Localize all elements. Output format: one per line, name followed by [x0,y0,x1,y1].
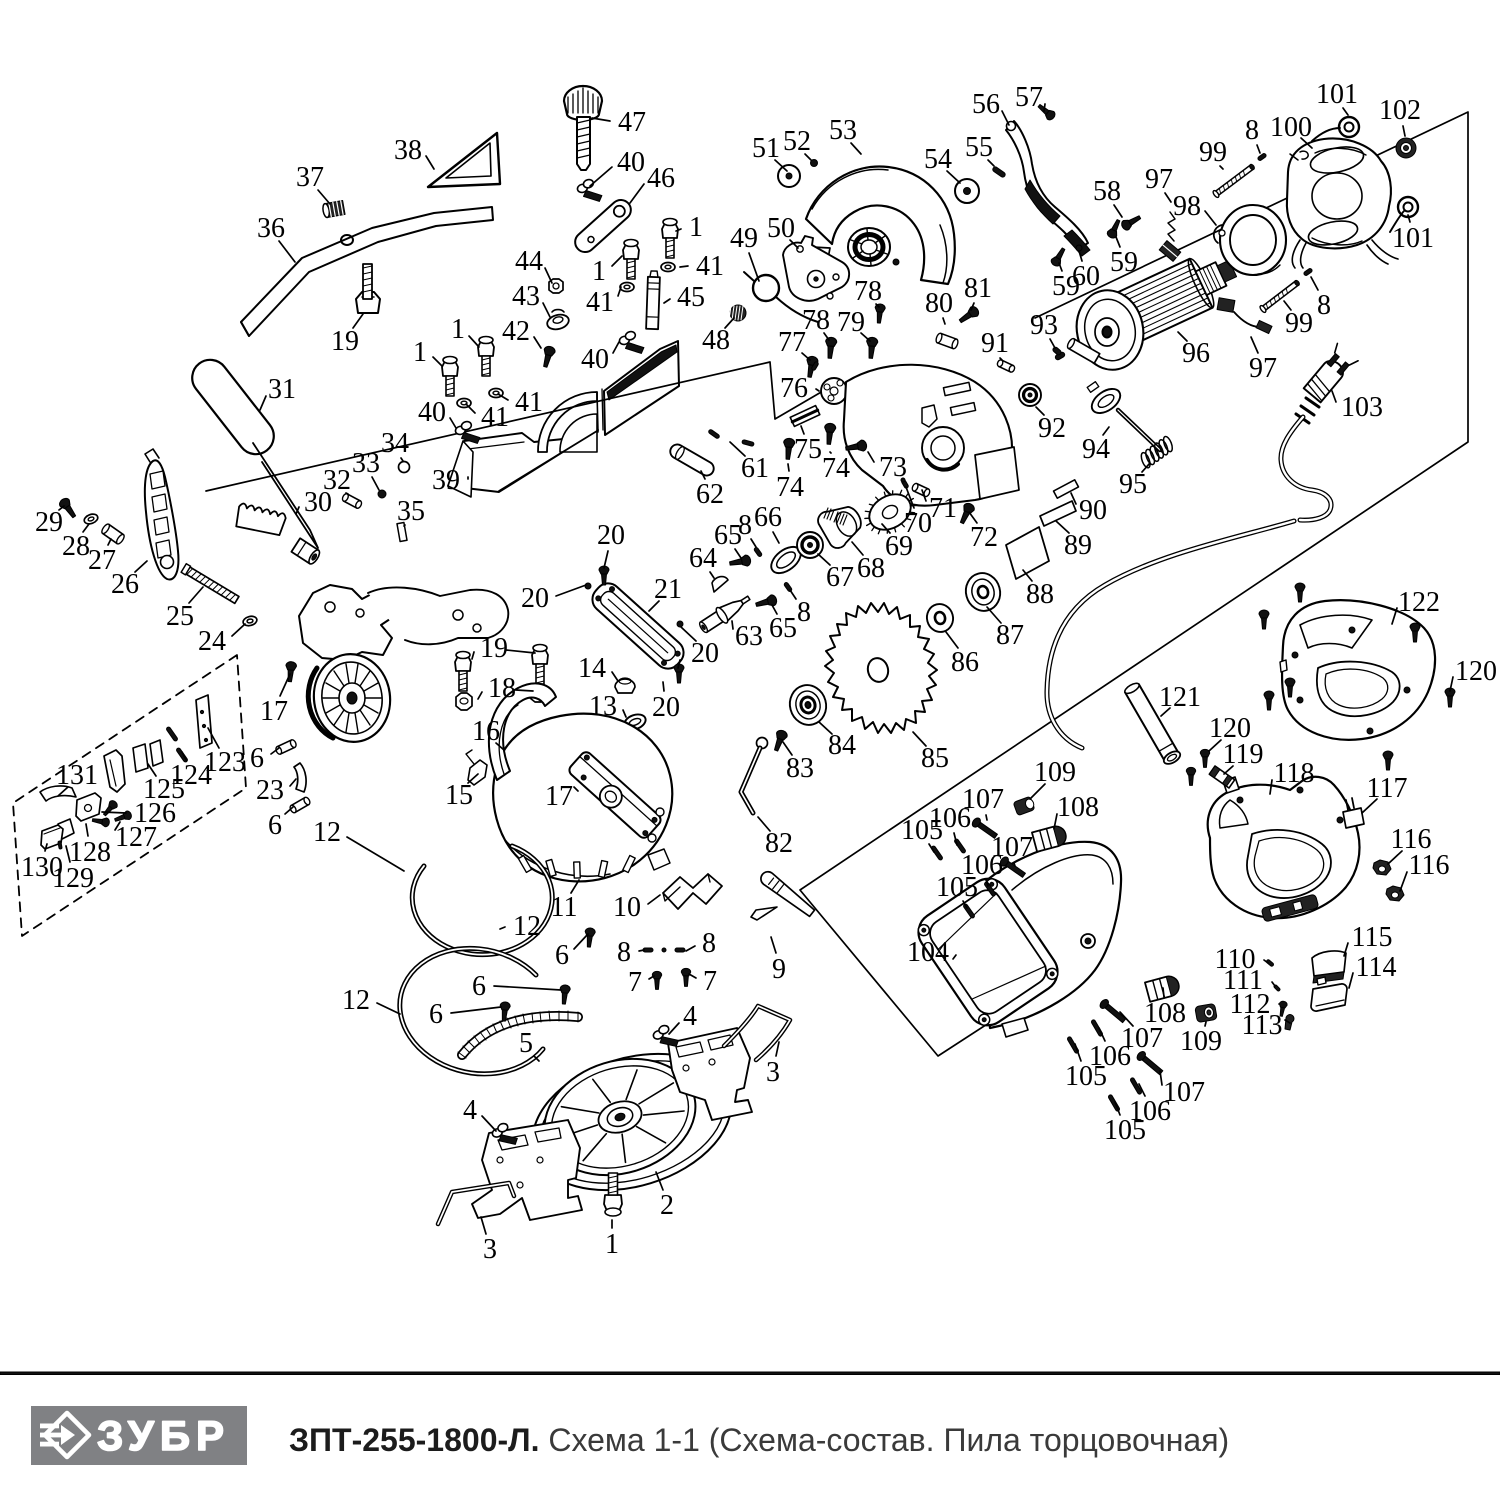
svg-text:114: 114 [1356,952,1397,983]
svg-text:40: 40 [418,397,446,428]
svg-text:8: 8 [738,510,752,541]
svg-text:5: 5 [519,1028,533,1059]
svg-text:34: 34 [381,428,409,459]
svg-text:52: 52 [783,126,811,157]
svg-text:62: 62 [696,479,724,510]
svg-text:6: 6 [555,940,569,971]
svg-text:102: 102 [1379,95,1421,126]
svg-text:30: 30 [304,487,332,518]
svg-text:116: 116 [1409,850,1450,881]
svg-text:1: 1 [605,1229,619,1260]
svg-text:68: 68 [857,553,885,584]
svg-text:108: 108 [1057,792,1099,823]
svg-text:3: 3 [766,1057,780,1088]
svg-text:118: 118 [1274,758,1315,789]
svg-text:ЗУБР: ЗУБР [97,1412,230,1459]
svg-text:107: 107 [962,784,1004,815]
svg-text:19: 19 [331,326,359,357]
svg-text:131: 131 [56,760,98,791]
svg-text:12: 12 [513,911,541,942]
svg-text:7: 7 [628,967,642,998]
svg-text:39: 39 [432,465,460,496]
svg-text:1: 1 [592,256,606,287]
svg-text:59: 59 [1052,271,1080,302]
svg-text:41: 41 [515,387,543,418]
svg-text:8: 8 [797,597,811,628]
svg-text:25: 25 [166,601,194,632]
svg-text:10: 10 [613,892,641,923]
svg-text:36: 36 [257,213,285,244]
svg-text:78: 78 [854,276,882,307]
svg-text:55: 55 [965,132,993,163]
svg-text:45: 45 [677,282,705,313]
svg-text:82: 82 [765,828,793,859]
svg-text:53: 53 [829,115,857,146]
svg-text:100: 100 [1270,112,1312,143]
svg-text:115: 115 [1352,922,1393,953]
svg-text:58: 58 [1093,176,1121,207]
svg-text:11: 11 [551,892,578,923]
svg-text:48: 48 [702,325,730,356]
svg-text:46: 46 [647,163,675,194]
svg-text:74: 74 [822,453,850,484]
svg-text:20: 20 [652,692,680,723]
svg-text:104: 104 [907,937,949,968]
svg-text:76: 76 [780,373,808,404]
svg-text:67: 67 [826,562,854,593]
svg-text:101: 101 [1316,79,1358,110]
svg-text:41: 41 [586,287,614,318]
svg-text:87: 87 [996,620,1024,651]
svg-text:3: 3 [483,1234,497,1265]
svg-text:117: 117 [1367,773,1408,804]
svg-text:43: 43 [512,281,540,312]
svg-text:127: 127 [115,822,157,853]
svg-text:23: 23 [256,775,284,806]
svg-text:74: 74 [776,472,804,503]
svg-text:99: 99 [1285,308,1313,339]
svg-text:64: 64 [689,543,717,574]
svg-text:41: 41 [481,402,509,433]
svg-text:4: 4 [463,1095,477,1126]
svg-text:81: 81 [964,273,992,304]
svg-text:109: 109 [1180,1026,1222,1057]
svg-text:86: 86 [951,647,979,678]
svg-text:107: 107 [991,832,1033,863]
svg-text:105: 105 [1104,1115,1146,1146]
svg-text:35: 35 [397,496,425,527]
svg-text:47: 47 [618,107,646,138]
svg-text:91: 91 [981,328,1009,359]
svg-text:73: 73 [879,452,907,483]
svg-text:130: 130 [21,852,63,883]
svg-text:88: 88 [1026,579,1054,610]
svg-text:28: 28 [62,531,90,562]
svg-text:31: 31 [268,374,296,405]
svg-text:20: 20 [691,638,719,669]
svg-text:122: 122 [1398,587,1440,618]
svg-text:101: 101 [1392,223,1434,254]
svg-text:96: 96 [1182,338,1210,369]
svg-text:6: 6 [268,810,282,841]
svg-text:57: 57 [1015,82,1043,113]
svg-text:113: 113 [1242,1010,1283,1041]
svg-text:95: 95 [1119,469,1147,500]
svg-text:72: 72 [970,522,998,553]
svg-text:61: 61 [741,453,769,484]
svg-text:12: 12 [342,985,370,1016]
svg-text:80: 80 [925,288,953,319]
svg-text:51: 51 [752,133,780,164]
svg-text:20: 20 [521,583,549,614]
svg-text:9: 9 [772,954,786,985]
svg-text:8: 8 [1245,115,1259,146]
svg-text:93: 93 [1030,310,1058,341]
svg-text:4: 4 [683,1001,697,1032]
svg-text:1: 1 [451,314,465,345]
svg-text:ЗПТ-255-1800-Л. Схема 1-1 (Схе: ЗПТ-255-1800-Л. Схема 1-1 (Схема-состав.… [289,1422,1229,1458]
svg-text:17: 17 [260,696,288,727]
svg-text:26: 26 [111,569,139,600]
svg-text:17: 17 [545,781,573,812]
svg-text:40: 40 [581,344,609,375]
svg-text:98: 98 [1173,191,1201,222]
svg-text:20: 20 [597,520,625,551]
svg-text:108: 108 [1144,998,1186,1029]
svg-text:14: 14 [578,653,606,684]
svg-text:2: 2 [660,1190,674,1221]
svg-text:29: 29 [35,507,63,538]
svg-text:6: 6 [250,743,264,774]
svg-text:40: 40 [617,147,645,178]
svg-text:69: 69 [885,531,913,562]
svg-text:42: 42 [502,316,530,347]
svg-text:44: 44 [515,246,543,277]
svg-text:38: 38 [394,135,422,166]
svg-text:65: 65 [769,613,797,644]
svg-text:37: 37 [296,162,324,193]
svg-text:85: 85 [921,743,949,774]
svg-text:13: 13 [589,691,617,722]
svg-text:59: 59 [1110,247,1138,278]
svg-text:63: 63 [735,621,763,652]
svg-text:56: 56 [972,89,1000,120]
svg-text:92: 92 [1038,413,1066,444]
svg-text:109: 109 [1034,757,1076,788]
svg-text:1: 1 [689,212,703,243]
svg-text:97: 97 [1145,164,1173,195]
svg-text:6: 6 [472,971,486,1002]
svg-text:103: 103 [1341,392,1383,423]
svg-text:12: 12 [313,817,341,848]
svg-text:89: 89 [1064,530,1092,561]
svg-text:90: 90 [1079,495,1107,526]
svg-text:18: 18 [488,673,516,704]
svg-text:21: 21 [654,574,682,605]
svg-text:16: 16 [472,716,500,747]
svg-text:6: 6 [429,999,443,1030]
svg-text:121: 121 [1159,682,1201,713]
svg-text:8: 8 [1317,290,1331,321]
svg-text:78: 78 [802,305,830,336]
svg-text:71: 71 [929,493,957,524]
svg-text:41: 41 [696,251,724,282]
svg-text:50: 50 [767,213,795,244]
svg-text:84: 84 [828,730,856,761]
svg-text:119: 119 [1223,739,1264,770]
svg-text:8: 8 [617,937,631,968]
svg-text:54: 54 [924,144,952,175]
svg-text:7: 7 [703,966,717,997]
svg-text:15: 15 [445,780,473,811]
svg-text:1: 1 [413,337,427,368]
svg-text:94: 94 [1082,434,1110,465]
svg-text:99: 99 [1199,137,1227,168]
svg-text:79: 79 [837,307,865,338]
svg-text:8: 8 [702,928,716,959]
svg-text:97: 97 [1249,353,1277,384]
svg-text:120: 120 [1455,656,1497,687]
svg-text:49: 49 [730,223,758,254]
svg-text:75: 75 [794,434,822,465]
svg-text:83: 83 [786,753,814,784]
svg-text:33: 33 [352,448,380,479]
svg-text:24: 24 [198,626,226,657]
svg-text:66: 66 [754,502,782,533]
svg-text:19: 19 [480,633,508,664]
